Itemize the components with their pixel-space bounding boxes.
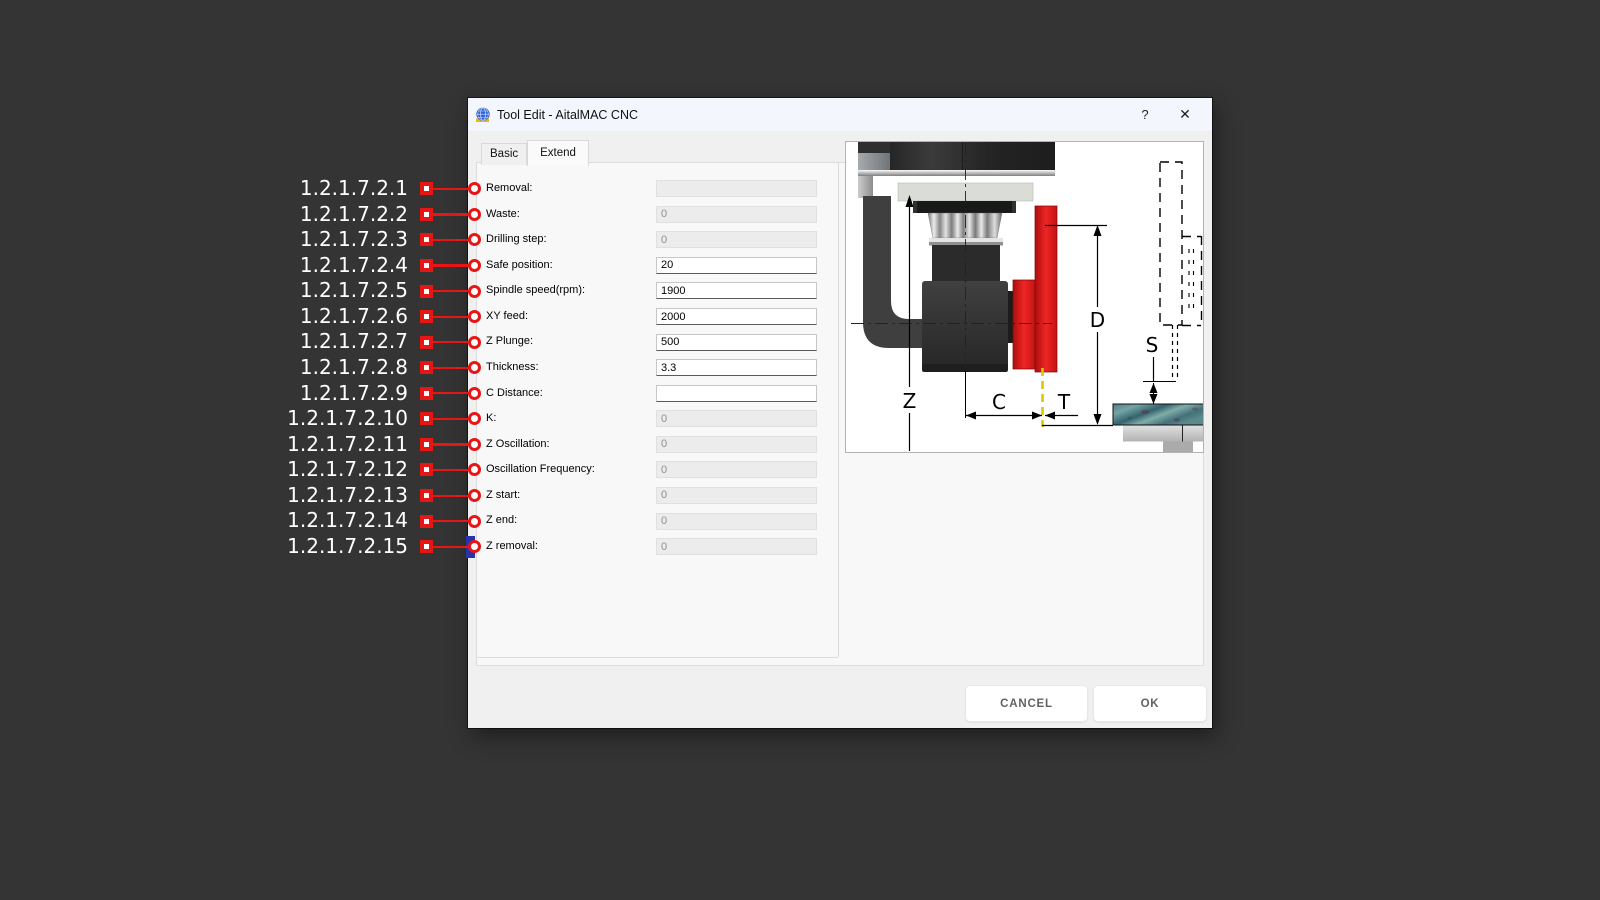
annotation-ref: 1.2.1.7.2.6 (0, 304, 408, 330)
annotation-circle-marker (468, 233, 481, 246)
field-row: 1.2.1.7.2.13 Z start: (0, 483, 830, 509)
annotation-ref: 1.2.1.7.2.1 (0, 176, 408, 202)
field-row: 1.2.1.7.2.1 Removal: (0, 176, 830, 202)
form-box-right-border (838, 163, 839, 657)
field-label: Removal: (486, 176, 532, 202)
field-row: 1.2.1.7.2.6 XY feed: (0, 304, 830, 330)
annotation-connector-line (433, 290, 469, 292)
annotation-connector-line (433, 367, 469, 369)
field-row: 1.2.1.7.2.8 Thickness: (0, 355, 830, 381)
field-row: 1.2.1.7.2.9 C Distance: (0, 381, 830, 407)
field-label: K: (486, 406, 496, 432)
field-label: Safe position: (486, 253, 553, 279)
annotation-square-marker (420, 463, 433, 476)
annotation-connector-line (433, 213, 469, 215)
annotation-ref: 1.2.1.7.2.14 (0, 508, 408, 534)
annotation-connector-line (433, 443, 469, 445)
ok-button[interactable]: OK (1094, 686, 1206, 721)
field-label: Drilling step: (486, 227, 547, 253)
annotation-circle-marker (468, 182, 481, 195)
field-input (656, 538, 817, 555)
annotation-connector-line (433, 239, 469, 241)
field-label: Z removal: (486, 534, 538, 560)
annotation-connector-line (433, 520, 469, 522)
field-row: 1.2.1.7.2.4 Safe position: (0, 253, 830, 279)
annotation-circle-marker (468, 336, 481, 349)
annotation-square-marker (420, 515, 433, 528)
field-label: Z Oscillation: (486, 432, 550, 458)
annotation-connector-line (433, 469, 469, 471)
tab-basic[interactable]: Basic (481, 143, 527, 165)
annotation-ref: 1.2.1.7.2.11 (0, 432, 408, 458)
table-pedestal (1163, 442, 1193, 454)
annotation-circle-marker (468, 515, 481, 528)
annotation-square-marker (420, 233, 433, 246)
field-input (656, 206, 817, 223)
field-input (656, 436, 817, 453)
label-s: S (1146, 333, 1159, 357)
annotation-circle-marker (468, 438, 481, 451)
annotation-circle-marker (468, 259, 481, 272)
annotation-circle-marker (468, 387, 481, 400)
annotation-ref: 1.2.1.7.2.9 (0, 381, 408, 407)
field-rows-overlay: 1.2.1.7.2.1 Removal: 1.2.1.7.2.2 Waste: … (0, 176, 830, 559)
annotation-connector-line (433, 392, 469, 394)
field-label: XY feed: (486, 304, 528, 330)
tab-extend[interactable]: Extend (527, 140, 589, 166)
close-button[interactable]: ✕ (1168, 98, 1202, 131)
annotation-circle-marker (468, 412, 481, 425)
annotation-square-marker (420, 412, 433, 425)
annotation-ref: 1.2.1.7.2.2 (0, 202, 408, 228)
dialog-title: Tool Edit - AitalMAC CNC (497, 108, 638, 122)
field-label: Z start: (486, 483, 520, 509)
help-button[interactable]: ? (1128, 98, 1162, 131)
annotation-circle-marker (468, 540, 481, 553)
tab-strip: Basic Extend (481, 138, 589, 164)
annotation-ref: 1.2.1.7.2.10 (0, 406, 408, 432)
annotation-ref: 1.2.1.7.2.5 (0, 278, 408, 304)
annotation-ref: 1.2.1.7.2.4 (0, 253, 408, 279)
field-input (656, 180, 817, 197)
annotation-circle-marker (468, 361, 481, 374)
annotation-square-marker (420, 285, 433, 298)
field-label: C Distance: (486, 381, 543, 407)
annotation-square-marker (420, 182, 433, 195)
annotation-ref: 1.2.1.7.2.8 (0, 355, 408, 381)
annotation-connector-line (433, 546, 469, 548)
field-row: 1.2.1.7.2.3 Drilling step: (0, 227, 830, 253)
field-label: Z Plunge: (486, 329, 533, 355)
annotation-square-marker (420, 259, 433, 272)
annotation-circle-marker (468, 310, 481, 323)
field-label: Waste: (486, 202, 520, 228)
annotation-square-marker (420, 540, 433, 553)
annotation-ref: 1.2.1.7.2.13 (0, 483, 408, 509)
globe-icon (475, 107, 491, 123)
annotation-connector-line (433, 316, 469, 318)
form-box-bottom-border (477, 657, 838, 658)
annotation-ref: 1.2.1.7.2.3 (0, 227, 408, 253)
field-input[interactable] (656, 385, 817, 402)
field-row: 1.2.1.7.2.7 Z Plunge: (0, 329, 830, 355)
label-d: D (1090, 308, 1105, 332)
field-label: Oscillation Frequency: (486, 457, 595, 483)
annotation-connector-line (433, 341, 469, 343)
cancel-button[interactable]: CANCEL (966, 686, 1087, 721)
annotation-ref: 1.2.1.7.2.7 (0, 329, 408, 355)
annotation-circle-marker (468, 208, 481, 221)
field-row: 1.2.1.7.2.12 Oscillation Frequency: (0, 457, 830, 483)
annotation-circle-marker (468, 463, 481, 476)
field-row: 1.2.1.7.2.5 Spindle speed(rpm): (0, 278, 830, 304)
field-input[interactable] (656, 257, 817, 274)
field-row: 1.2.1.7.2.11 Z Oscillation: (0, 432, 830, 458)
field-input (656, 461, 817, 478)
annotation-square-marker (420, 387, 433, 400)
field-input[interactable] (656, 308, 817, 325)
table-support (1123, 426, 1204, 442)
field-input[interactable] (656, 282, 817, 299)
label-c: C (992, 390, 1006, 414)
annotation-square-marker (420, 310, 433, 323)
annotation-connector-line (433, 188, 469, 190)
label-z: Z (903, 389, 917, 413)
annotation-ref: 1.2.1.7.2.12 (0, 457, 408, 483)
annotation-square-marker (420, 208, 433, 221)
field-input (656, 513, 817, 530)
annotation-square-marker (420, 361, 433, 374)
field-row: 1.2.1.7.2.10 K: (0, 406, 830, 432)
field-label: Spindle speed(rpm): (486, 278, 585, 304)
field-input (656, 487, 817, 504)
annotation-square-marker (420, 438, 433, 451)
field-input[interactable] (656, 334, 817, 351)
annotation-circle-marker (468, 489, 481, 502)
field-input (656, 231, 817, 248)
field-row: 1.2.1.7.2.2 Waste: (0, 202, 830, 228)
annotation-square-marker (420, 489, 433, 502)
annotation-connector-line (433, 418, 469, 420)
field-label: Thickness: (486, 355, 539, 381)
cnc-tool-diagram: Z D C T S (845, 141, 1204, 453)
annotation-connector-line (433, 264, 469, 266)
dialog-titlebar: Tool Edit - AitalMAC CNC (468, 98, 1212, 131)
angle-head-body (922, 281, 1008, 372)
field-input[interactable] (656, 359, 817, 376)
field-row: 1.2.1.7.2.14 Z end: (0, 508, 830, 534)
field-label: Z end: (486, 508, 517, 534)
field-input (656, 410, 817, 427)
field-row: 1.2.1.7.2.15 Z removal: (0, 534, 830, 560)
annotation-square-marker (420, 336, 433, 349)
label-t: T (1057, 390, 1071, 414)
annotation-ref: 1.2.1.7.2.15 (0, 534, 408, 560)
annotation-connector-line (433, 495, 469, 497)
annotation-circle-marker (468, 285, 481, 298)
